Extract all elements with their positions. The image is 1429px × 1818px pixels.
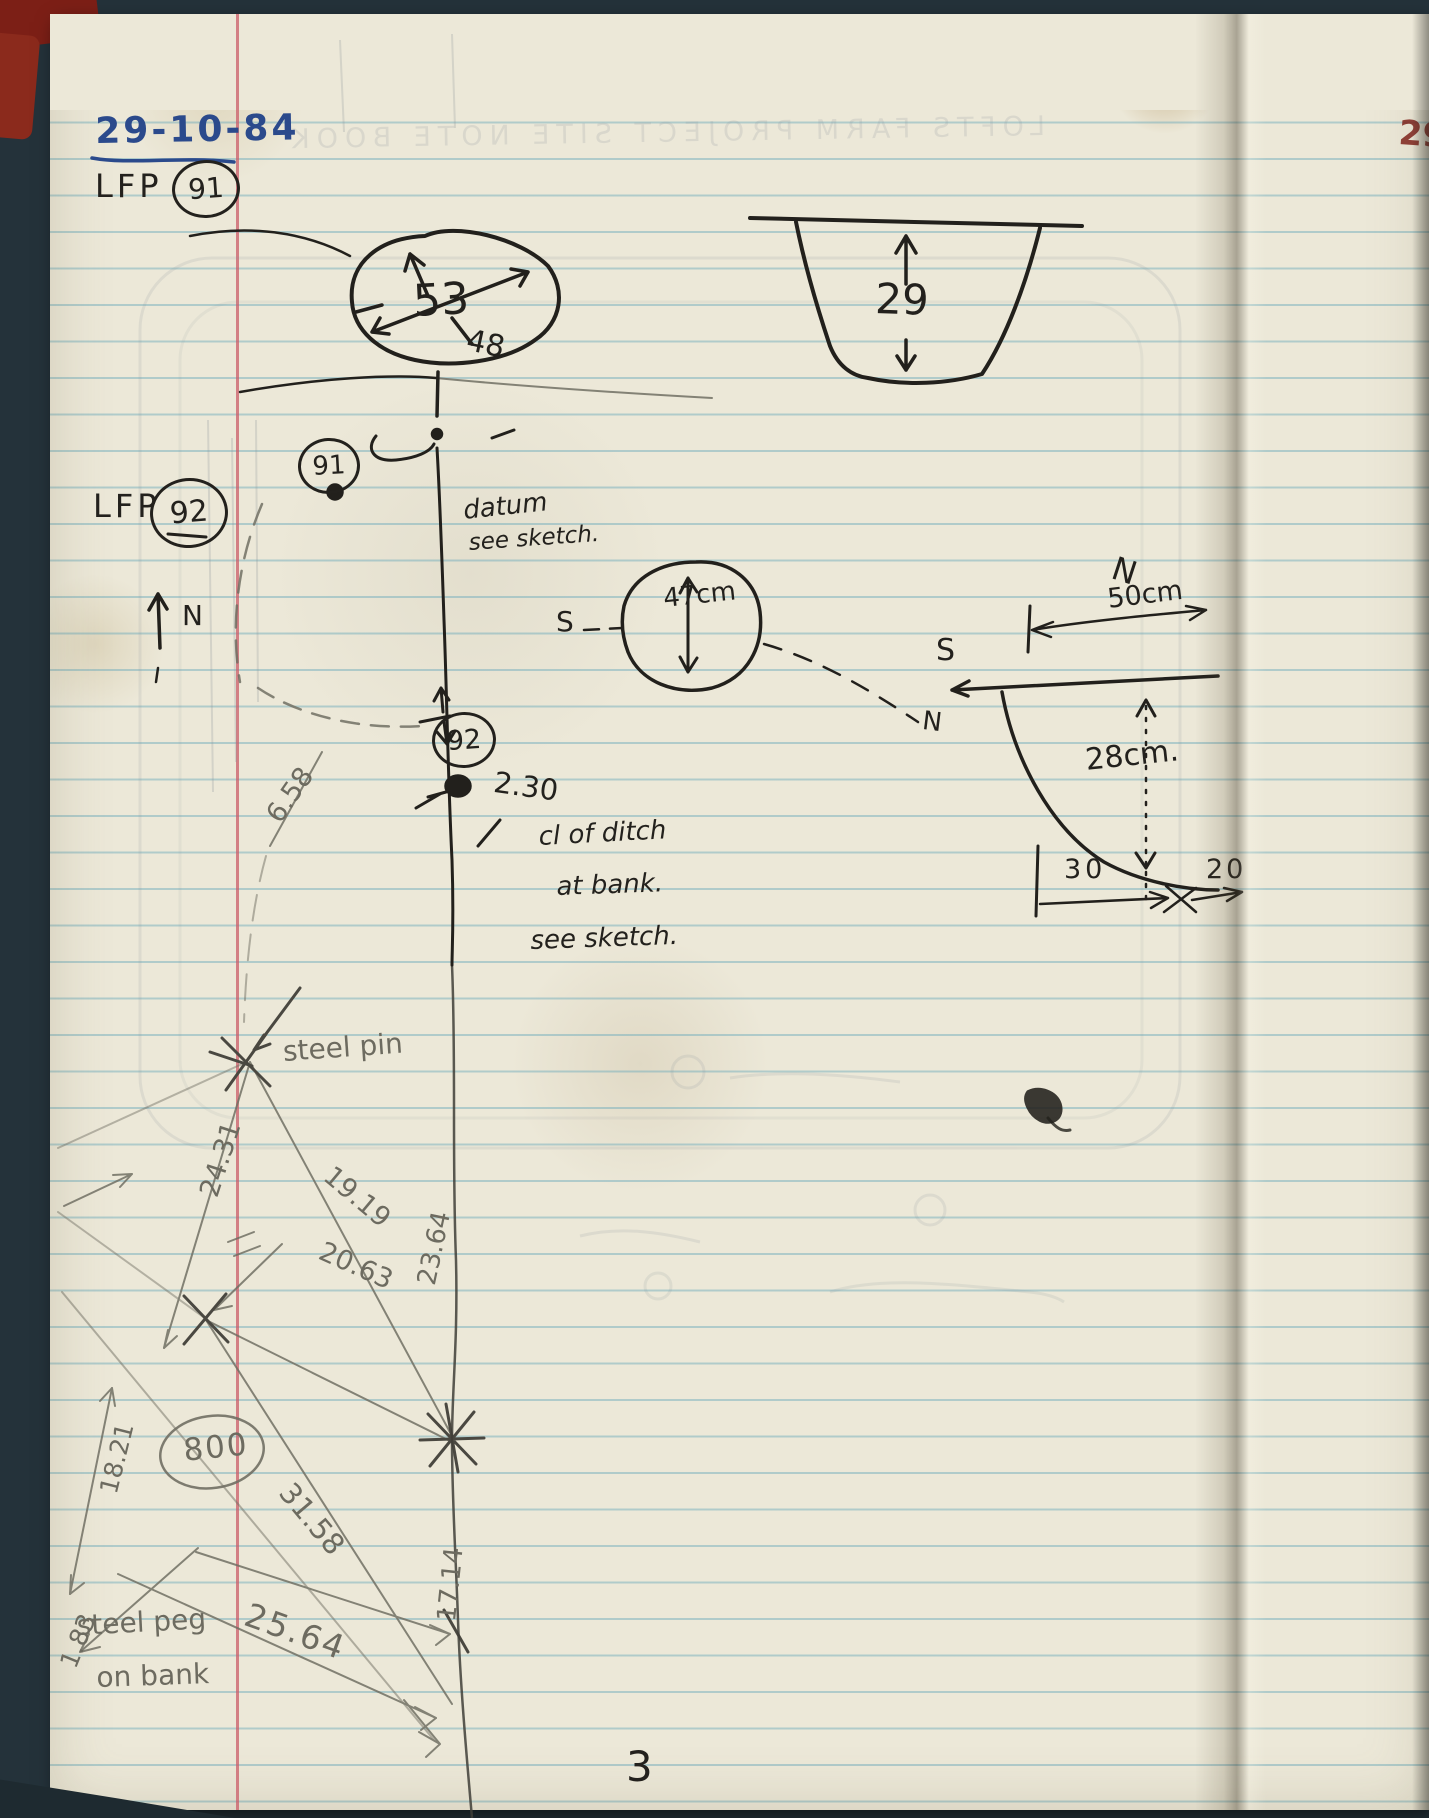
datum-line-seg2 — [437, 448, 453, 965]
profile29-groundline — [750, 218, 1082, 226]
profile29-value: 29 — [875, 278, 930, 322]
pit-sn-dashes-right — [764, 644, 918, 722]
profile29-arrow-down — [897, 340, 915, 370]
datum-dot — [433, 430, 442, 439]
hook-mark-left — [371, 436, 434, 460]
plan-line-left — [190, 230, 350, 256]
measure-line-2063 — [206, 1320, 452, 1442]
pencil-baseline-extension — [436, 378, 712, 398]
page-right-edge-shadow — [1412, 14, 1429, 1810]
ghost-column-line-2 — [232, 438, 236, 762]
steel-pin-x-mark — [222, 1034, 270, 1090]
pit-depth-value: 47cm — [662, 578, 737, 611]
tick-marks-double — [228, 1232, 260, 1256]
ditch-note-1: cl of ditch — [538, 817, 667, 850]
ghost-circle-mark-1 — [672, 1056, 704, 1088]
station-x-mark — [184, 1294, 228, 1344]
pit-sn-dashes-left — [584, 628, 622, 630]
north-label: N — [182, 602, 203, 630]
oval-dim-53: 53 — [412, 277, 470, 324]
section-groundline — [952, 676, 1218, 696]
measure-line-2564 — [118, 1574, 436, 1718]
page-number: 3 — [626, 1746, 653, 1788]
ghost-column-line-1 — [208, 420, 213, 792]
tick-right-of-line — [492, 430, 514, 438]
section-50cm-bar — [1028, 606, 1030, 652]
section-dim30: 30 — [1064, 856, 1106, 883]
ghost-scribble-3 — [730, 1074, 900, 1082]
oval-dim-48: 48 — [464, 326, 508, 363]
pencil-feature-arc-lower — [258, 688, 422, 727]
section-dim-bar — [1036, 846, 1038, 916]
arrow-left-small — [64, 1174, 132, 1206]
section-south-label: S — [936, 636, 955, 666]
arrow-into-station — [214, 1244, 282, 1310]
section-line-lower — [452, 965, 472, 1818]
ghost-scribble-2 — [830, 1283, 1064, 1302]
pit-south-label: S — [556, 608, 574, 636]
page-spine-crease — [1195, 14, 1267, 1810]
feature92-dot — [446, 776, 470, 796]
steel-peg-label-1: steel peg — [76, 1605, 207, 1640]
pin-extra-stroke — [210, 1052, 252, 1066]
ghost-scribble-1 — [580, 1231, 700, 1242]
ditch-note-3: see sketch. — [530, 923, 678, 954]
arrowhead-2431 — [164, 1330, 177, 1348]
section-cut-curve — [1002, 692, 1218, 890]
section-dim30-arrow — [1040, 892, 1168, 908]
measure-line-2431 — [164, 1062, 250, 1348]
measure-1714: 17.14 — [434, 1546, 468, 1623]
ghost-column-line-3 — [256, 420, 258, 702]
pit-north-label: N — [921, 708, 943, 736]
tick-230 — [478, 820, 500, 846]
ditch-note-2: at bank. — [556, 870, 663, 900]
pencil-line-to-pin — [244, 856, 266, 1022]
offset-230: 2.30 — [492, 768, 560, 806]
entry-date: 29-10-84 — [95, 110, 300, 150]
station-800-value: 800 — [182, 1429, 250, 1467]
ghost-column-line-5 — [452, 34, 455, 128]
line-edge-to-station — [58, 1212, 202, 1316]
north-arrow-tail — [156, 668, 158, 682]
datum-line-seg1 — [437, 372, 438, 416]
ghost-circle-mark-2 — [915, 1195, 945, 1225]
ghost-plan-outline-inner — [180, 302, 1142, 1118]
north-arrow — [149, 594, 167, 648]
steel-peg-label-2: on bank — [96, 1660, 210, 1692]
ink-smudge-tail — [1048, 1118, 1070, 1131]
feature92-dot-tails — [416, 792, 446, 808]
steel-pin-label: steel pin — [282, 1030, 404, 1066]
scanned-notebook-page: LOFTS FARM PROJECT SITE NOTE BOOK — [0, 0, 1429, 1818]
ghost-plan-outline — [140, 258, 1180, 1148]
plan-line-under-oval — [240, 377, 436, 392]
ghost-column-line-4 — [340, 40, 344, 132]
ghost-circle-mark-3 — [645, 1273, 671, 1299]
section-28cm-heads — [1136, 700, 1155, 868]
lfp91-prefix: LFP — [95, 170, 163, 202]
